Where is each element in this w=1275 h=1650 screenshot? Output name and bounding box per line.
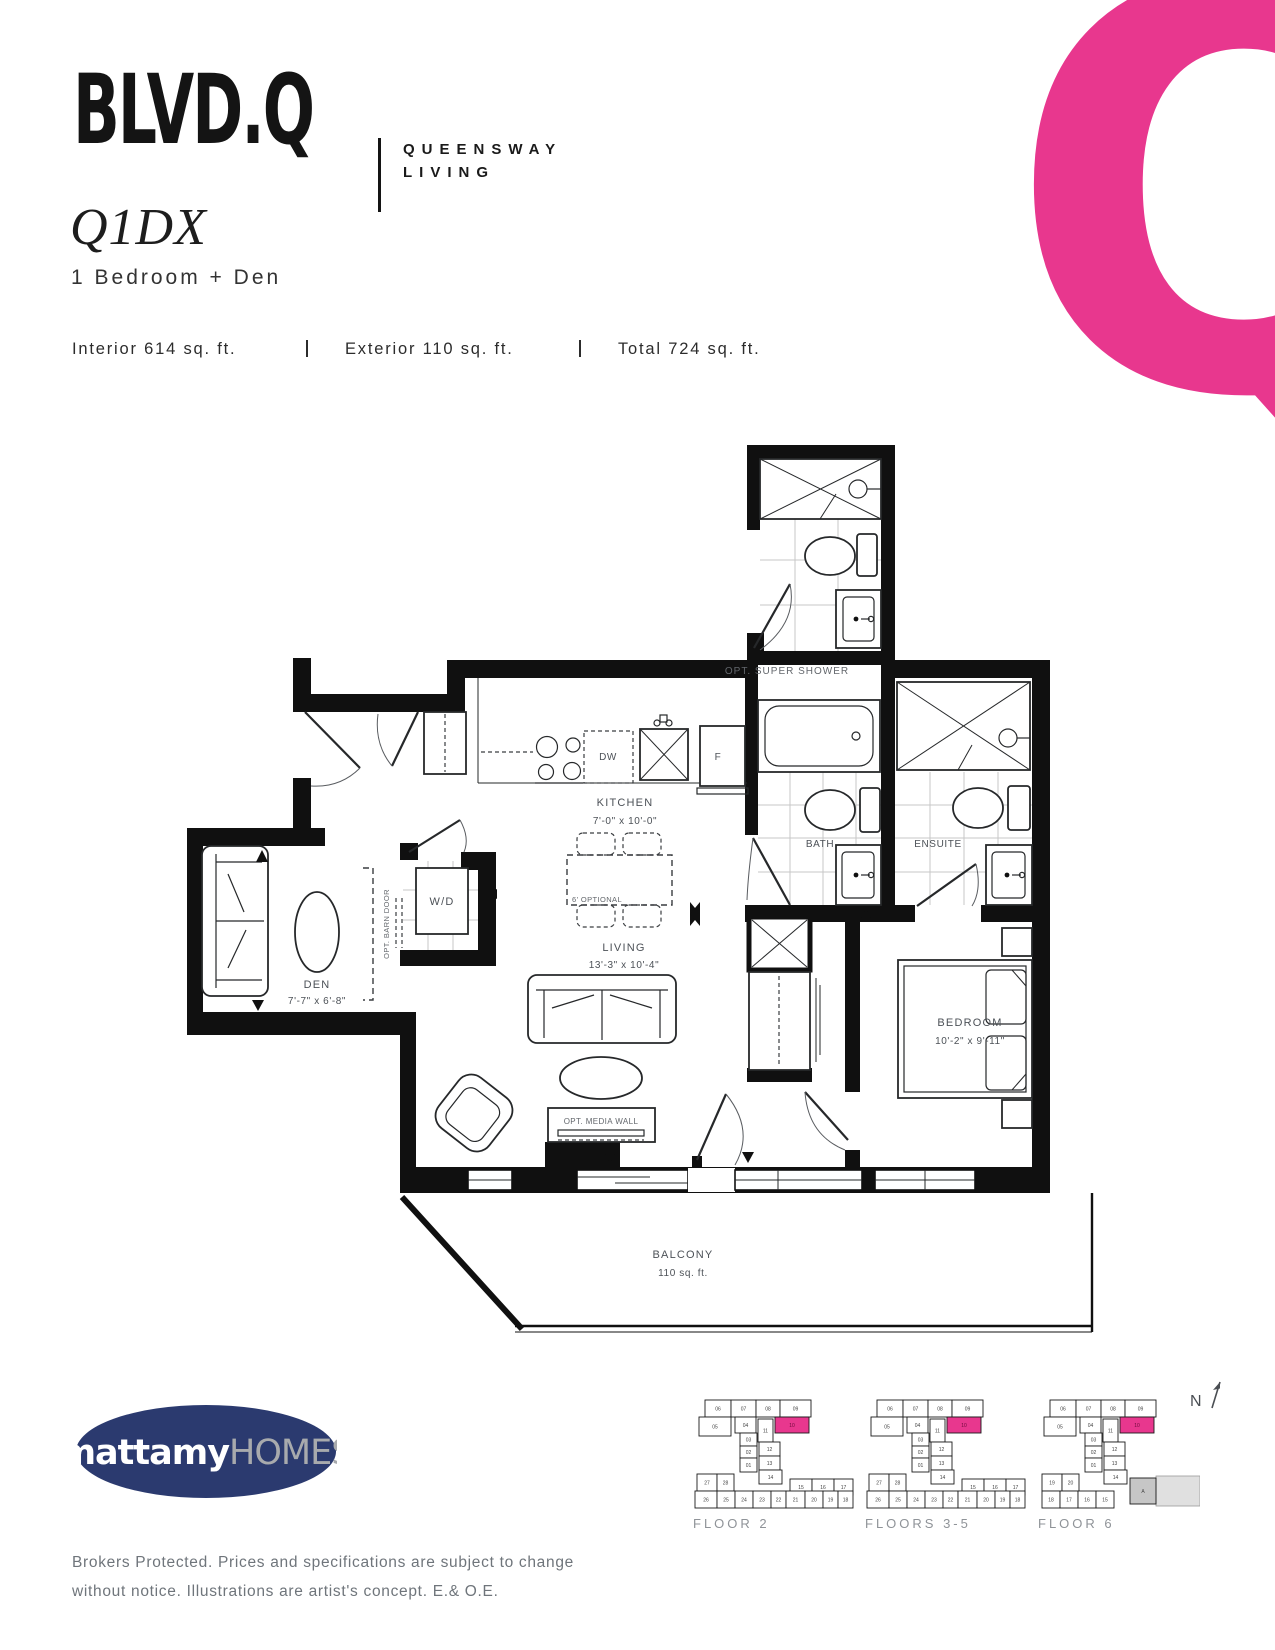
bed (898, 960, 1032, 1098)
keyplan-unit-number: 18 (1048, 1498, 1054, 1504)
north-label: N (1190, 1393, 1202, 1410)
keyplan-unit-number: 01 (1091, 1463, 1097, 1469)
sink-icon (640, 715, 688, 780)
opt-super-shower-label: OPT. SUPER SHOWER (725, 666, 849, 677)
keyplan-unit-number: 01 (746, 1463, 752, 1469)
keyplan-unit-number: 24 (913, 1498, 919, 1504)
brand-tagline: QUEENSWAY LIVING (403, 138, 562, 185)
sofa (528, 975, 676, 1043)
entry-door-leaf (305, 712, 360, 768)
keyplan-unit-number: 19 (1000, 1498, 1006, 1504)
interior-area: Interior 614 sq. ft. (72, 340, 236, 359)
keyplan-unit-number: 12 (767, 1447, 773, 1453)
opt-super-shower-inset (754, 459, 881, 650)
keyplan-unit-number: 05 (884, 1425, 890, 1431)
door-leaf (754, 584, 790, 648)
brand-block: BLVD.Q QUEENSWAY LIVING (73, 62, 448, 162)
coffee-table (560, 1057, 642, 1099)
den-label: DEN (304, 979, 331, 991)
keyplan-unit-number: 27 (876, 1481, 882, 1487)
keyplan-unit-number: 12 (1112, 1447, 1118, 1453)
keyplan-unit-number: 16 (992, 1485, 998, 1491)
bath-label: BATH (806, 839, 834, 850)
unit-model-title: Q1DX (70, 198, 207, 257)
keyplan-unit-number: 19 (1049, 1481, 1055, 1487)
keyplan-unit-number: 27 (704, 1481, 710, 1487)
keyplan-unit-number: 22 (776, 1498, 782, 1504)
fridge-label: F (715, 752, 722, 763)
keyplan-unit-number: 06 (1060, 1407, 1066, 1413)
keyplan-unit-number: 20 (1068, 1481, 1074, 1487)
keyplan-unit-number: 12 (939, 1447, 945, 1453)
keyplan-unit-number: 15 (970, 1485, 976, 1491)
keyplan-unit-number: 02 (746, 1450, 752, 1456)
balcony-area: 110 sq. ft. (658, 1268, 708, 1279)
keyplan-unit-number: 22 (948, 1498, 954, 1504)
keyplan-unit-number: 21 (793, 1498, 799, 1504)
living-dims: 13'-3" x 10'-4" (589, 960, 660, 971)
keyplan-unit-number: 20 (983, 1498, 989, 1504)
keyplan-unit-number: 17 (1013, 1485, 1019, 1491)
table-optional-label: 6' OPTIONAL (572, 895, 622, 904)
tagline-line1: QUEENSWAY (403, 138, 562, 161)
toilet-tank (857, 534, 877, 576)
toilet (953, 788, 1003, 828)
total-area: Total 724 sq. ft. (618, 340, 761, 359)
amenity-slab (1156, 1476, 1200, 1506)
keyplan-unit-number: 23 (759, 1498, 765, 1504)
keyplan-unit-number: 25 (895, 1498, 901, 1504)
ensuite-label: ENSUITE (914, 839, 962, 850)
keyplan-unit-number: 04 (915, 1423, 921, 1429)
toilet (805, 790, 855, 830)
closet-door-leaf (392, 712, 418, 766)
keyplan-unit-number: 14 (768, 1475, 774, 1481)
dining-set (567, 833, 672, 927)
keyplan-label-floor6: FLOOR 6 (1038, 1516, 1115, 1531)
wd-door-leaf (409, 820, 460, 852)
keyplan-unit-number: 25 (723, 1498, 729, 1504)
mattamy-logo: mattamyHOMES (75, 1404, 337, 1499)
keyplan-unit-number: 24 (741, 1498, 747, 1504)
den-table (295, 892, 339, 972)
laundry-closet (396, 820, 468, 948)
armchair (429, 1068, 519, 1158)
keyplan-unit-number: 10 (789, 1423, 795, 1429)
area-stats: Interior 614 sq. ft. Exterior 110 sq. ft… (0, 340, 1275, 364)
keyplan-unit-number: 03 (918, 1438, 924, 1444)
disclaimer: Brokers Protected. Prices and specificat… (72, 1548, 574, 1606)
disclaimer-line2: without notice. Illustrations are artist… (72, 1577, 574, 1606)
bathtub (758, 700, 880, 772)
exterior-area: Exterior 110 sq. ft. (345, 340, 514, 359)
keyplan-unit-number: 07 (913, 1407, 919, 1413)
keyplan-unit-number: 03 (746, 1438, 752, 1444)
big-q-graphic: Q (1010, 0, 1275, 430)
floorplan-sheet: BLVD.Q QUEENSWAY LIVING Q Q1DX 1 Bedroom… (0, 0, 1275, 1650)
toilet (805, 537, 855, 575)
nightstand (1002, 1100, 1032, 1128)
keyplan-label-floors3-5: FLOORS 3-5 (865, 1516, 971, 1531)
keyplan-unit-number: 09 (965, 1407, 971, 1413)
keyplan-unit-number: 14 (940, 1475, 946, 1481)
loveseat (202, 846, 268, 996)
nightstand (1002, 928, 1032, 956)
stat-separator (579, 340, 581, 357)
keyplan-unit-number: 17 (1066, 1498, 1072, 1504)
den-dims: 7'-7" x 6'-8" (288, 996, 346, 1007)
bedroom-door-leaf (805, 1092, 848, 1140)
keyplan-unit-number: 07 (741, 1407, 747, 1413)
balcony-door-opening (688, 1168, 735, 1192)
keyplan-unit-number: 16 (1084, 1498, 1090, 1504)
ensuite-door-leaf (917, 864, 976, 906)
keyplan-unit-number: 13 (767, 1461, 773, 1467)
big-q-letter: Q (1010, 0, 1275, 430)
keyplan-floors3-5: 0607080905041110030201121314272815161726… (865, 1398, 1027, 1510)
builder-suffix: HOMES (229, 1433, 337, 1473)
svg-text:mattamyHOMES: mattamyHOMES (75, 1433, 337, 1473)
keyplan-unit-number: 17 (841, 1485, 847, 1491)
floorplan-drawing: OPT. SUPER SHOWER (170, 420, 1100, 1345)
keyplan-unit-number: 06 (887, 1407, 893, 1413)
keyplan-unit-number: 11 (763, 1429, 768, 1435)
keyplan-unit-number: 06 (715, 1407, 721, 1413)
builder-name: mattamy (75, 1433, 230, 1473)
keyplan-unit-number: 04 (1088, 1423, 1094, 1429)
section-marker (690, 902, 700, 926)
bedroom-dims: 10'-2" x 9'-11" (935, 1036, 1005, 1047)
keyplan-unit-number: 07 (1086, 1407, 1092, 1413)
keyplan-unit-number: 26 (875, 1498, 881, 1504)
keyplan-unit-number: 08 (937, 1407, 943, 1413)
keyplan-unit-number: 09 (1138, 1407, 1144, 1413)
keyplan-unit-number: 11 (935, 1429, 940, 1435)
keyplan-unit-number: 18 (843, 1498, 849, 1504)
media-wall-label: OPT. MEDIA WALL (564, 1117, 639, 1126)
stat-separator (306, 340, 308, 357)
keyplan-unit-number: 10 (1134, 1423, 1140, 1429)
keyplan-unit-number: 26 (703, 1498, 709, 1504)
fridge (700, 726, 745, 786)
kitchen-dims: 7'-0" x 10'-0" (593, 816, 657, 827)
kitchen-fixtures (478, 678, 748, 794)
keyplan-unit-number: 01 (918, 1463, 924, 1469)
keyplan-unit-number: 20 (811, 1498, 817, 1504)
keyplan-unit-number: 10 (961, 1423, 967, 1429)
keyplan-unit-number: 03 (1091, 1438, 1097, 1444)
logo-divider (378, 138, 381, 212)
living-furniture (429, 975, 676, 1158)
dw-label: DW (599, 752, 617, 763)
balcony-rail (402, 1193, 1092, 1332)
keyplan-unit-number: 13 (939, 1461, 945, 1467)
keyplan-unit-number: 23 (931, 1498, 937, 1504)
entry (305, 712, 466, 786)
keyplan-unit-number: 14 (1113, 1475, 1119, 1481)
living-label: LIVING (602, 942, 645, 954)
keyplan-unit-number: 16 (820, 1485, 826, 1491)
bedroom-label: BEDROOM (937, 1017, 1002, 1029)
bath-fixtures (747, 700, 881, 905)
keyplan-unit-number: 11 (1108, 1429, 1113, 1435)
keyplan-unit-number: 15 (798, 1485, 804, 1491)
blvdq-logo: BLVD.Q (73, 62, 313, 158)
keyplan-unit-number: 02 (1091, 1450, 1097, 1456)
balcony-door-leaf (697, 1094, 726, 1160)
keyplan-unit-number: 08 (765, 1407, 771, 1413)
keyplan-unit-number: 02 (918, 1450, 924, 1456)
keyplan-unit-number: 05 (712, 1425, 718, 1431)
keyplan-unit-number: 28 (723, 1481, 729, 1487)
balcony-label: BALCONY (653, 1249, 714, 1261)
keyplan-unit-number: 13 (1112, 1461, 1118, 1467)
keyplan-unit-number: 15 (1102, 1498, 1108, 1504)
cooktop-icon (535, 737, 583, 784)
north-arrow: N (1182, 1376, 1242, 1424)
closets (749, 917, 820, 1070)
tagline-line2: LIVING (403, 161, 562, 184)
keyplan-label-floor2: FLOOR 2 (693, 1516, 770, 1531)
keyplan-floor2: 0607080905041110030201121314272815161726… (693, 1398, 855, 1510)
keyplan-unit-number: 21 (965, 1498, 971, 1504)
wd-label: W/D (430, 896, 455, 908)
disclaimer-line1: Brokers Protected. Prices and specificat… (72, 1548, 574, 1577)
keyplan-unit-number: 04 (743, 1423, 749, 1429)
unit-type-subtitle: 1 Bedroom + Den (71, 266, 281, 290)
keyplan-unit-number: 05 (1057, 1425, 1063, 1431)
keyplan-unit-number: 18 (1015, 1498, 1021, 1504)
keyplan-unit-number: 28 (895, 1481, 901, 1487)
kitchen-label: KITCHEN (597, 797, 654, 809)
keyplan-unit-number: 08 (1110, 1407, 1116, 1413)
den-furniture (202, 846, 373, 1000)
keyplan-floor6: 06070809050411100302011213141920A1817161… (1038, 1398, 1200, 1510)
keyplan-unit-number: 09 (793, 1407, 799, 1413)
keyplan-unit-number: 19 (828, 1498, 834, 1504)
barn-door-label: OPT. BARN DOOR (382, 889, 391, 959)
